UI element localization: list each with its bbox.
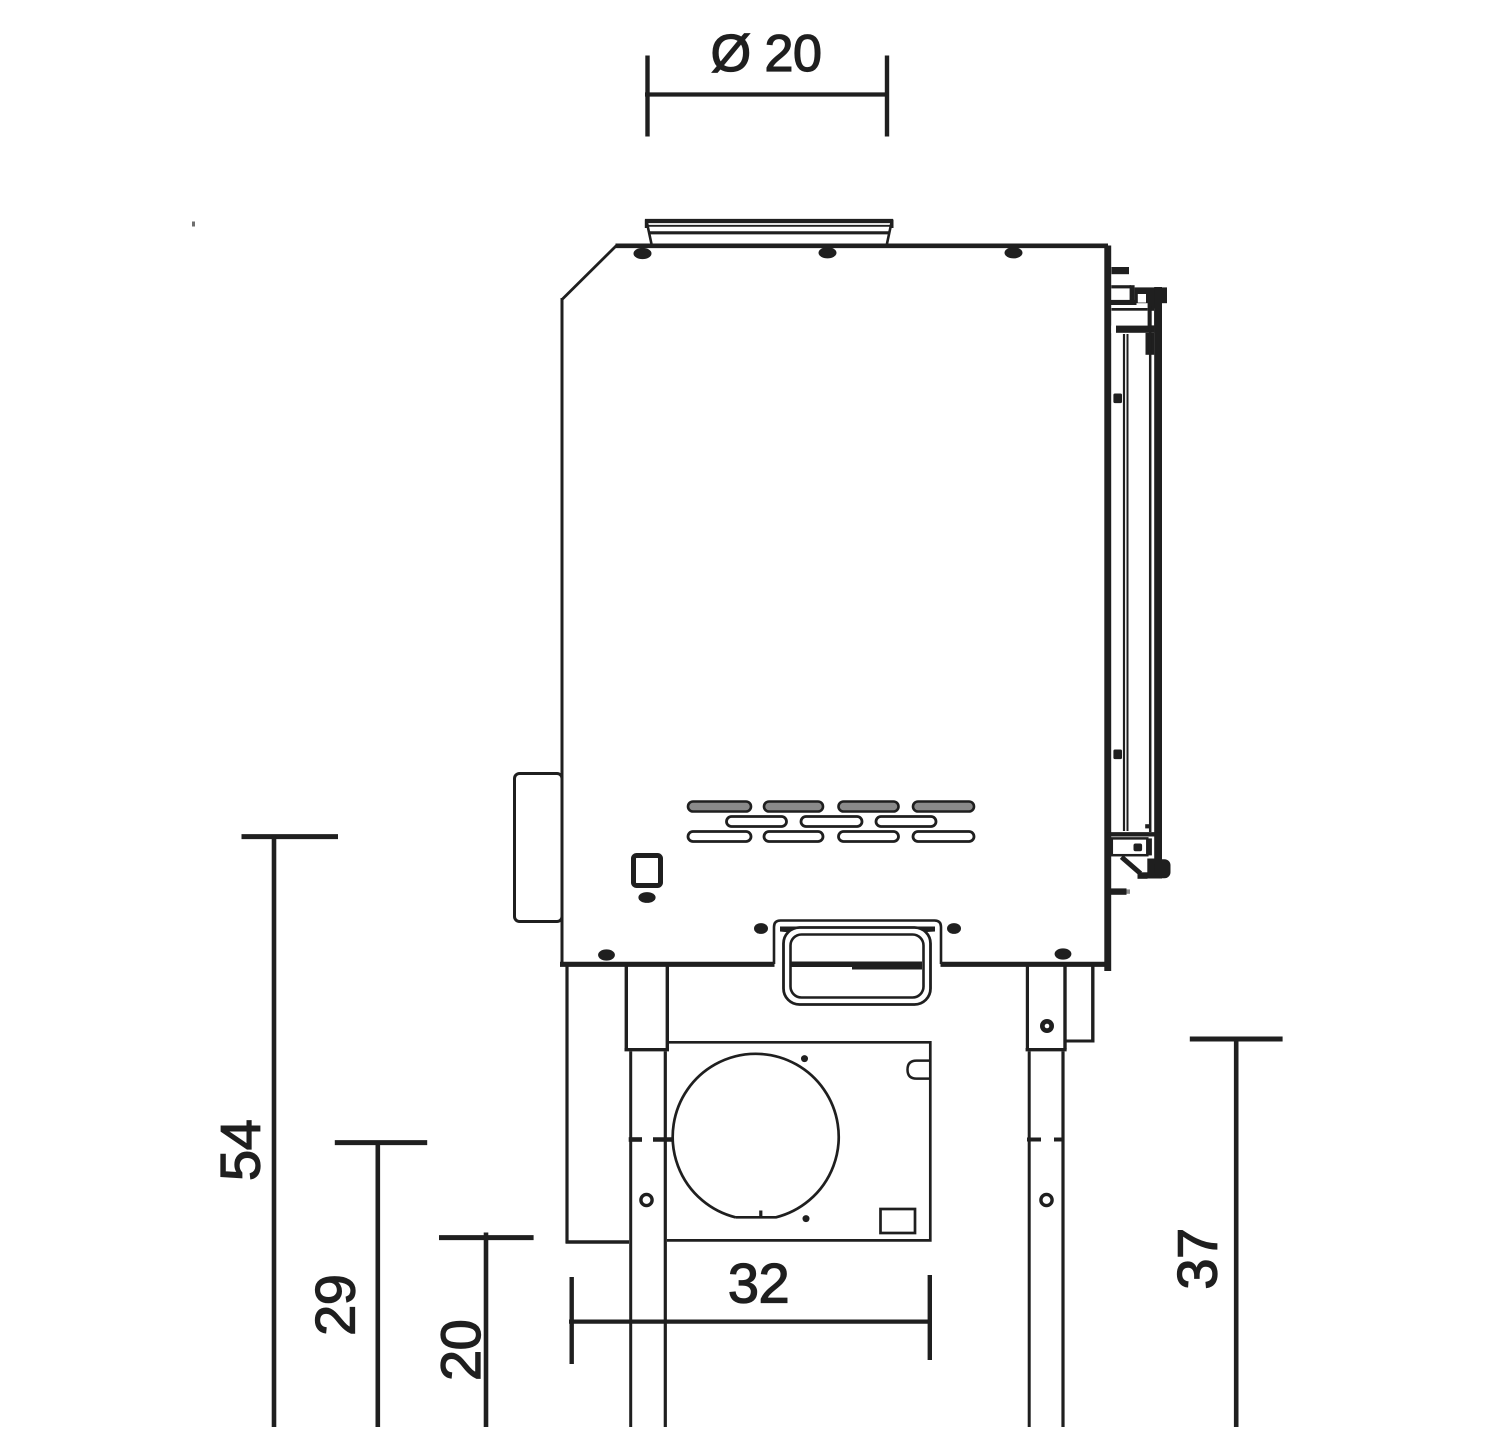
svg-text:37: 37 bbox=[1165, 1228, 1228, 1289]
svg-text:20: 20 bbox=[429, 1320, 492, 1381]
svg-text:29: 29 bbox=[303, 1275, 366, 1336]
svg-text:32: 32 bbox=[728, 1252, 789, 1315]
svg-text:Ø 20: Ø 20 bbox=[711, 25, 822, 83]
svg-text:54: 54 bbox=[209, 1120, 272, 1181]
